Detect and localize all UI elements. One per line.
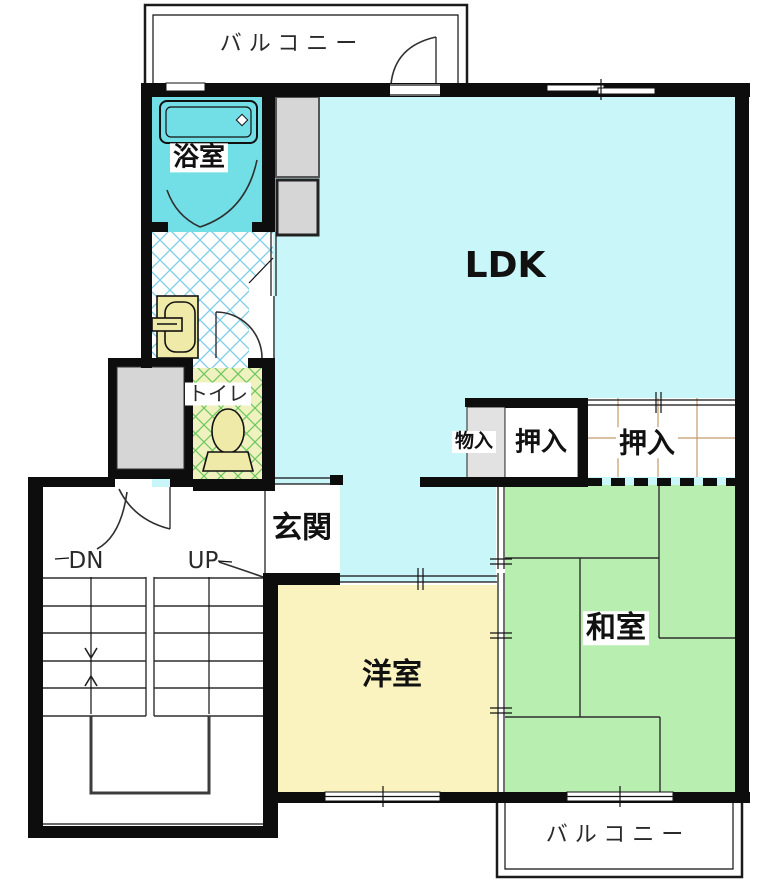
ldk-window	[598, 88, 655, 94]
washbasin	[152, 296, 198, 358]
floor-plan: バルコニー 浴室 トイレ LDK 物入 押入 押入 玄関 DN UP 洋室 和室…	[0, 0, 769, 885]
stairs-down-label: DN	[66, 548, 107, 574]
stair-hall	[43, 487, 263, 826]
toilet-label: トイレ	[185, 383, 251, 406]
closet-right-label: 押入	[616, 427, 678, 458]
bathroom-label: 浴室	[170, 143, 228, 172]
stairs-up-label: UP	[185, 548, 222, 574]
western-room-label: 洋室	[359, 658, 425, 692]
pipe-space	[117, 367, 184, 469]
ldk-window	[547, 85, 604, 91]
entrance-label: 玄関	[269, 511, 335, 545]
balcony-doorway	[390, 84, 440, 96]
closet-left-label: 押入	[512, 428, 570, 457]
balcony-bottom-label: バルコニー	[543, 822, 694, 847]
storage-label: 物入	[452, 431, 496, 453]
balcony-top-label: バルコニー	[217, 31, 368, 56]
japanese-room-label: 和室	[583, 611, 649, 645]
kitchen-counter	[276, 97, 319, 235]
ldk-label: LDK	[462, 246, 549, 286]
bath-window	[166, 83, 205, 91]
